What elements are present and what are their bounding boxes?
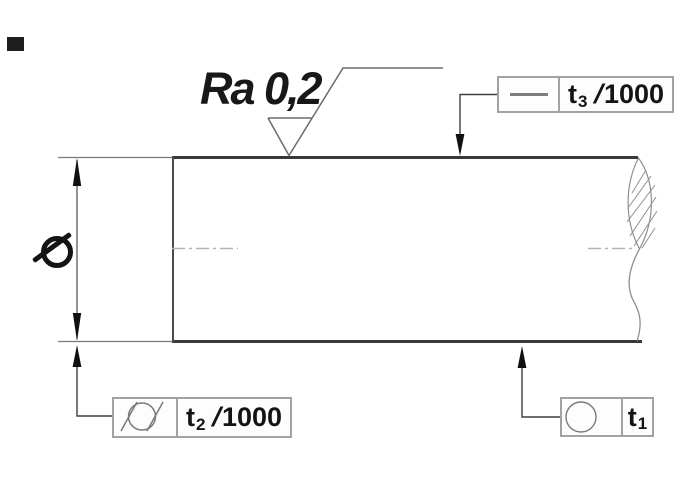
tolerance-frame-straightness: t3/1000 xyxy=(497,76,674,113)
drawing-canvas: Ra 0,2 t3/1000 t2/1000 xyxy=(0,0,700,500)
tolerance-value-straightness: t3/1000 xyxy=(560,78,672,111)
tolerance-letter: t xyxy=(628,402,637,433)
tolerance-frame-roundness: t1 xyxy=(560,397,654,437)
tolerance-subscript: 2 xyxy=(196,415,205,435)
tolerance-letter: t xyxy=(186,402,195,433)
break-wave-line xyxy=(629,249,640,341)
cylindricity-icon xyxy=(114,399,178,436)
leader-cylindricity xyxy=(73,345,112,416)
per-length-value: 1000 xyxy=(604,79,664,110)
tolerance-letter: t xyxy=(568,79,577,110)
tolerance-frame-cylindricity: t2/1000 xyxy=(112,397,292,438)
leader-roundness xyxy=(518,346,560,417)
diameter-symbol xyxy=(26,226,78,272)
dimension-arrow-down xyxy=(73,313,81,341)
shaft-outline xyxy=(172,156,642,343)
dimension-arrow-up xyxy=(73,158,81,186)
tolerance-value-cylindricity: t2/1000 xyxy=(178,399,290,436)
leader-arrow-up xyxy=(73,345,82,367)
straightness-line-icon xyxy=(499,78,560,111)
tolerance-subscript: 3 xyxy=(578,92,587,112)
diameter-circle xyxy=(41,236,73,268)
tolerance-value-roundness: t1 xyxy=(623,399,652,435)
leader-arrow-up xyxy=(518,346,527,368)
hatching xyxy=(627,170,657,248)
surface-roughness-label: Ra 0,2 xyxy=(200,63,321,115)
break-revolve xyxy=(627,158,657,341)
per-length-value: 1000 xyxy=(222,402,282,433)
roundness-circle-icon xyxy=(562,399,623,435)
tolerance-subscript: 1 xyxy=(638,414,647,434)
leader-arrow-down xyxy=(456,134,465,156)
leader-straightness xyxy=(456,95,497,157)
